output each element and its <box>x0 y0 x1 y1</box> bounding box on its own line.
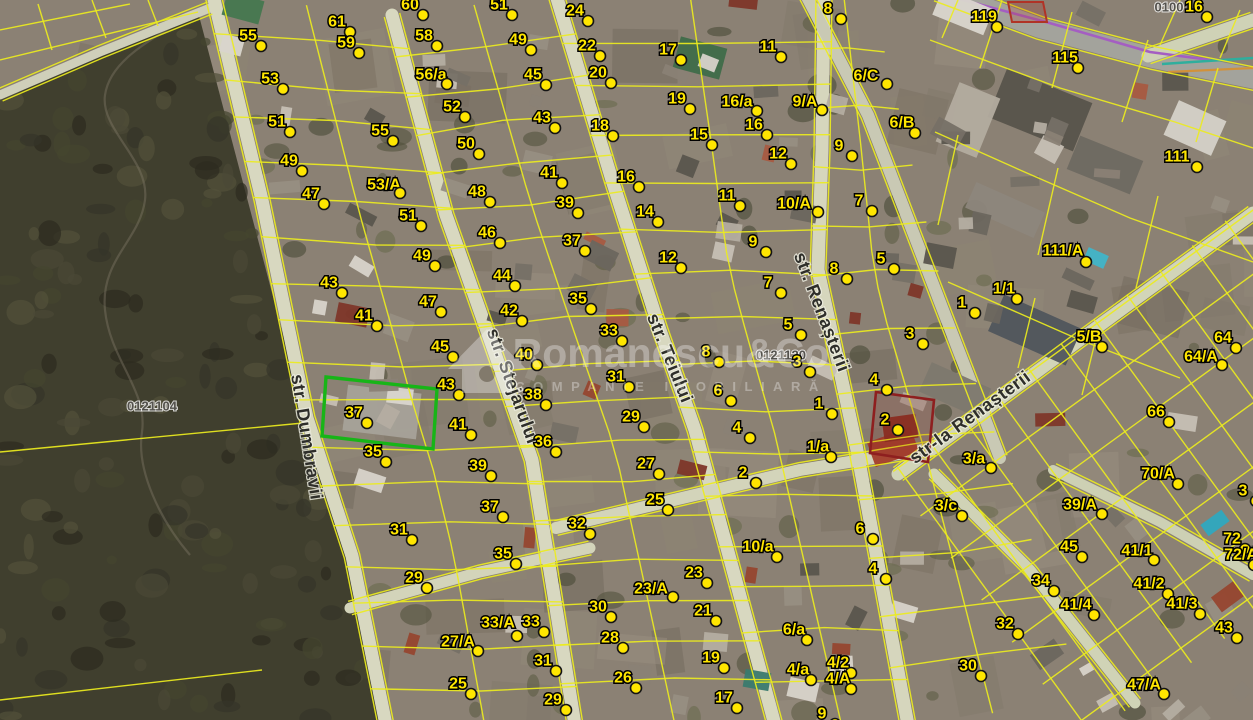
parcel-marker[interactable] <box>388 136 399 147</box>
parcel-marker[interactable] <box>752 106 763 117</box>
parcel-marker[interactable] <box>498 512 509 523</box>
parcel-number: 31 <box>390 522 408 539</box>
parcel-number: 45 <box>1060 539 1078 556</box>
parcel-number: 4 <box>733 420 742 437</box>
parcel-marker[interactable] <box>422 583 433 594</box>
parcel-marker[interactable] <box>407 535 418 546</box>
parcel-marker[interactable] <box>1012 294 1023 305</box>
parcel-number: 55 <box>239 28 257 45</box>
parcel-number: 41 <box>449 417 467 434</box>
parcel-number: 111 <box>1165 149 1190 166</box>
parcel-marker[interactable] <box>618 643 629 654</box>
parcel-marker[interactable] <box>606 612 617 623</box>
parcel-marker[interactable] <box>893 425 904 436</box>
parcel-marker[interactable] <box>278 84 289 95</box>
parcel-number: 9 <box>818 706 827 720</box>
parcel-marker[interactable] <box>772 552 783 563</box>
parcel-number: 49 <box>509 32 527 49</box>
parcel-number: 7 <box>855 193 864 210</box>
parcel-marker[interactable] <box>842 274 853 285</box>
parcel-number: 49 <box>280 153 298 170</box>
parcel-number: 11 <box>760 39 777 56</box>
parcel-marker[interactable] <box>1081 257 1092 268</box>
parcel-marker[interactable] <box>1049 586 1060 597</box>
parcel-number: 39/A <box>1063 497 1097 514</box>
parcel-marker[interactable] <box>416 221 427 232</box>
parcel-number: 6 <box>856 521 865 538</box>
parcel-number: 26 <box>614 670 632 687</box>
parcel-number: 10/A <box>777 196 811 213</box>
parcel-marker[interactable] <box>1202 12 1213 23</box>
parcel-number: 16 <box>745 117 763 134</box>
parcel-marker[interactable] <box>1097 342 1108 353</box>
parcel-marker[interactable] <box>1232 633 1243 644</box>
parcel-number: 24 <box>566 3 584 20</box>
parcel-number: 20 <box>589 65 607 82</box>
parcel-marker[interactable] <box>639 422 650 433</box>
parcel-number: 31 <box>534 653 552 670</box>
parcel-marker[interactable] <box>846 684 857 695</box>
parcel-number: 49 <box>413 248 431 265</box>
parcel-number: 58 <box>415 28 433 45</box>
parcel-number: 16 <box>1185 0 1203 16</box>
parcel-marker[interactable] <box>707 140 718 151</box>
parcel-number: 45 <box>431 339 449 356</box>
parcel-marker[interactable] <box>1173 479 1184 490</box>
parcel-marker[interactable] <box>881 574 892 585</box>
watermark-tagline: COMPANIE IMOBILIARĂ <box>515 379 826 394</box>
parcel-number: 29 <box>544 692 562 709</box>
parcel-marker[interactable] <box>986 463 997 474</box>
parcel-number: 32 <box>996 616 1014 633</box>
parcel-number: 43 <box>320 275 338 292</box>
parcel-marker[interactable] <box>735 201 746 212</box>
parcel-marker[interactable] <box>436 307 447 318</box>
parcel-number: 15 <box>690 127 708 144</box>
parcel-number: 28 <box>601 630 619 647</box>
parcel-marker[interactable] <box>663 505 674 516</box>
parcel-number: 10/a <box>742 539 773 556</box>
parcel-marker[interactable] <box>418 10 429 21</box>
parcel-number: 25 <box>449 676 467 693</box>
parcel-marker[interactable] <box>676 55 687 66</box>
parcel-number: 4 <box>870 372 879 389</box>
parcel-marker[interactable] <box>654 469 665 480</box>
parcel-marker[interactable] <box>762 130 773 141</box>
parcel-number: 29 <box>622 409 640 426</box>
parcel-number: 41/1 <box>1121 543 1152 560</box>
parcel-number: 33 <box>522 614 540 631</box>
parcel-number: 61 <box>328 14 346 31</box>
parcel-marker[interactable] <box>868 534 879 545</box>
parcel-marker[interactable] <box>867 206 878 217</box>
parcel-number: 72/A <box>1224 547 1253 564</box>
parcel-number: 8 <box>830 261 839 278</box>
parcel-number: 37 <box>481 499 499 516</box>
parcel-marker[interactable] <box>372 321 383 332</box>
parcel-number: 1/a <box>807 439 829 456</box>
parcel-number: 111/A <box>1043 243 1084 260</box>
parcel-marker[interactable] <box>473 646 484 657</box>
parcel-number: 43 <box>437 377 455 394</box>
parcel-marker[interactable] <box>918 339 929 350</box>
parcel-number: 22 <box>578 38 596 55</box>
parcel-marker[interactable] <box>827 409 838 420</box>
parcel-marker[interactable] <box>751 478 762 489</box>
parcel-marker[interactable] <box>634 182 645 193</box>
parcel-marker[interactable] <box>910 128 921 139</box>
parcel-number: 37 <box>345 405 363 422</box>
parcel-marker[interactable] <box>606 78 617 89</box>
parcel-marker[interactable] <box>466 689 477 700</box>
parcel-marker[interactable] <box>786 159 797 170</box>
parcel-number: 16/a <box>721 94 752 111</box>
parcel-number: 35 <box>569 291 587 308</box>
parcel-marker[interactable] <box>1249 560 1253 571</box>
parcel-number: 51 <box>399 208 417 225</box>
parcel-marker[interactable] <box>957 511 968 522</box>
parcel-number: 64/A <box>1184 349 1218 366</box>
parcel-marker[interactable] <box>580 246 591 257</box>
parcel-number: 52 <box>443 99 461 116</box>
cadastral-code-label: 0121104 <box>127 399 178 414</box>
parcel-number: 14 <box>636 204 654 221</box>
parcel-marker[interactable] <box>806 675 817 686</box>
parcel-marker[interactable] <box>1013 629 1024 640</box>
parcel-number: 46 <box>478 225 496 242</box>
parcel-marker[interactable] <box>813 207 824 218</box>
parcel-marker[interactable] <box>395 188 406 199</box>
parcel-marker[interactable] <box>474 149 485 160</box>
parcel-marker[interactable] <box>573 208 584 219</box>
parcel-number: 47 <box>419 294 437 311</box>
parcel-marker[interactable] <box>732 703 743 714</box>
parcel-marker[interactable] <box>826 452 837 463</box>
parcel-marker[interactable] <box>1195 609 1206 620</box>
parcel-marker[interactable] <box>583 16 594 27</box>
parcel-marker[interactable] <box>970 308 981 319</box>
parcel-number: 51 <box>268 114 286 131</box>
cadastral-code-label: 0100 <box>1155 0 1184 15</box>
parcel-number: 3/c <box>935 498 957 515</box>
parcel-number: 66 <box>1147 404 1165 421</box>
parcel-number: 33/A <box>481 615 515 632</box>
parcel-number: 39 <box>469 458 487 475</box>
parcel-number: 59 <box>337 35 355 52</box>
parcel-marker[interactable] <box>551 447 562 458</box>
parcel-marker[interactable] <box>337 288 348 299</box>
parcel-marker[interactable] <box>486 471 497 482</box>
parcel-marker[interactable] <box>541 400 552 411</box>
parcel-marker[interactable] <box>726 396 737 407</box>
parcel-number: 9 <box>835 138 844 155</box>
parcel-marker[interactable] <box>608 131 619 142</box>
parcel-number: 27/A <box>441 634 475 651</box>
parcel-number: 1 <box>958 295 967 312</box>
parcel-marker[interactable] <box>319 199 330 210</box>
parcel-number: 19 <box>668 91 686 108</box>
parcel-number: 41 <box>540 165 558 182</box>
parcel-number: 25 <box>646 492 664 509</box>
parcel-number: 64 <box>1214 330 1232 347</box>
parcel-number: 17 <box>659 42 677 59</box>
watermark-house-window <box>479 366 495 382</box>
parcel-marker[interactable] <box>466 430 477 441</box>
parcel-marker[interactable] <box>992 22 1003 33</box>
parcel-marker[interactable] <box>362 418 373 429</box>
parcel-marker[interactable] <box>539 627 550 638</box>
parcel-marker[interactable] <box>1097 509 1108 520</box>
parcel-number: 6/a <box>783 622 805 639</box>
parcel-marker[interactable] <box>585 529 596 540</box>
parcel-number: 23/A <box>634 581 668 598</box>
parcel-number: 51 <box>490 0 508 14</box>
parcel-number: 17 <box>715 690 733 707</box>
parcel-marker[interactable] <box>354 48 365 59</box>
parcel-marker[interactable] <box>507 10 518 21</box>
parcel-marker[interactable] <box>1149 555 1160 566</box>
parcel-number: 41/4 <box>1060 597 1091 614</box>
parcel-number: 3 <box>1239 483 1248 500</box>
parcel-number: 30 <box>959 658 977 675</box>
parcel-number: 7 <box>764 275 773 292</box>
parcel-marker[interactable] <box>551 666 562 677</box>
parcel-number: 53 <box>261 71 279 88</box>
parcel-number: 43 <box>1215 620 1233 637</box>
parcel-marker[interactable] <box>802 635 813 646</box>
parcel-number: 47 <box>302 186 320 203</box>
parcel-number: 29 <box>405 570 423 587</box>
parcel-number: 11 <box>719 188 736 205</box>
parcel-marker[interactable] <box>1077 552 1088 563</box>
parcel-number: 35 <box>364 444 382 461</box>
parcel-marker[interactable] <box>495 238 506 249</box>
parcel-marker[interactable] <box>430 261 441 272</box>
parcel-number: 6/C <box>854 68 879 85</box>
parcel-marker[interactable] <box>817 105 828 116</box>
parcel-number: 39 <box>556 195 574 212</box>
parcel-number: 48 <box>468 184 486 201</box>
parcel-marker[interactable] <box>550 123 561 134</box>
parcel-marker[interactable] <box>595 51 606 62</box>
parcel-marker[interactable] <box>1089 610 1100 621</box>
parcel-number: 41 <box>355 308 373 325</box>
parcel-number: 12 <box>769 146 787 163</box>
parcel-number: 2 <box>881 412 890 429</box>
parcel-marker[interactable] <box>432 41 443 52</box>
parcel-marker[interactable] <box>702 578 713 589</box>
parcel-number: 3 <box>906 326 915 343</box>
parcel-marker[interactable] <box>1073 63 1084 74</box>
parcel-number: 27 <box>637 456 655 473</box>
restricted-building-outline <box>1008 2 1047 22</box>
parcel-marker[interactable] <box>297 166 308 177</box>
parcel-marker[interactable] <box>442 79 453 90</box>
parcel-number: 35 <box>494 546 512 563</box>
parcel-number: 2 <box>739 465 748 482</box>
parcel-marker[interactable] <box>256 41 267 52</box>
satellite-map-canvas[interactable]: 012110401211200100 str. Dumbraviistr. St… <box>0 0 1253 720</box>
parcel-marker[interactable] <box>586 304 597 315</box>
parcel-number: 32 <box>568 516 586 533</box>
parcel-number: 12 <box>659 250 677 267</box>
parcel-marker[interactable] <box>511 559 522 570</box>
parcel-marker[interactable] <box>668 592 679 603</box>
parcel-marker[interactable] <box>381 457 392 468</box>
parcel-number: 4 <box>869 561 878 578</box>
parcel-marker[interactable] <box>719 663 730 674</box>
parcel-marker[interactable] <box>557 178 568 189</box>
parcel-marker[interactable] <box>517 316 528 327</box>
parcel-marker[interactable] <box>285 127 296 138</box>
parcel-marker[interactable] <box>847 151 858 162</box>
parcel-marker[interactable] <box>776 288 787 299</box>
parcel-number: 70/A <box>1141 466 1175 483</box>
parcel-marker[interactable] <box>976 671 987 682</box>
parcel-marker[interactable] <box>889 264 900 275</box>
parcel-number: 36 <box>534 434 552 451</box>
parcel-marker[interactable] <box>561 705 572 716</box>
parcel-marker[interactable] <box>711 616 722 627</box>
parcel-marker[interactable] <box>460 112 471 123</box>
parcel-marker[interactable] <box>836 14 847 25</box>
parcel-number: 44 <box>493 268 511 285</box>
parcel-number: 16 <box>617 169 635 186</box>
parcel-number: 21 <box>694 603 712 620</box>
parcel-marker[interactable] <box>1159 689 1170 700</box>
parcel-marker[interactable] <box>761 247 772 258</box>
parcel-number: 47/A <box>1127 677 1161 694</box>
parcel-number: 1/1 <box>993 281 1015 298</box>
parcel-marker[interactable] <box>510 281 521 292</box>
parcel-number: 8 <box>824 1 833 18</box>
parcel-marker[interactable] <box>653 217 664 228</box>
parcel-number: 42 <box>500 303 518 320</box>
parcel-number: 41/3 <box>1166 596 1197 613</box>
parcel-number: 23 <box>685 565 703 582</box>
parcel-number: 3/a <box>963 451 985 468</box>
parcel-number: 60 <box>401 0 419 14</box>
parcel-number: 34 <box>1032 573 1050 590</box>
parcel-number: 50 <box>457 136 475 153</box>
parcel-number: 43 <box>533 110 551 127</box>
parcel-marker[interactable] <box>1164 417 1175 428</box>
parcel-number: 72 <box>1223 531 1241 548</box>
parcel-marker[interactable] <box>526 45 537 56</box>
parcel-number: 18 <box>591 118 609 135</box>
parcel-marker[interactable] <box>1231 343 1242 354</box>
parcel-marker[interactable] <box>541 80 552 91</box>
parcel-number: 4/a <box>787 662 809 679</box>
parcel-marker[interactable] <box>676 263 687 274</box>
parcel-marker[interactable] <box>1192 162 1203 173</box>
parcel-marker[interactable] <box>485 197 496 208</box>
parcel-number: 19 <box>702 650 720 667</box>
parcel-marker[interactable] <box>882 79 893 90</box>
parcel-marker[interactable] <box>1217 360 1228 371</box>
parcel-number: 30 <box>589 599 607 616</box>
satellite-map-viewport[interactable]: 012110401211200100 str. Dumbraviistr. St… <box>0 0 1253 720</box>
parcel-number: 37 <box>563 233 581 250</box>
watermark-brand: Romanescu&Co <box>513 330 830 376</box>
parcel-number: 55 <box>371 123 389 140</box>
parcel-number: 5 <box>877 251 886 268</box>
parcel-number: 9 <box>749 234 758 251</box>
parcel-marker[interactable] <box>745 433 756 444</box>
parcel-marker[interactable] <box>776 52 787 63</box>
parcel-number: 9/A <box>793 94 818 111</box>
parcel-number: 4/2 <box>827 655 849 672</box>
parcel-marker[interactable] <box>882 385 893 396</box>
parcel-marker[interactable] <box>512 631 523 642</box>
parcel-marker[interactable] <box>631 683 642 694</box>
parcel-number: 1 <box>815 396 824 413</box>
parcel-number: 41/2 <box>1133 576 1164 593</box>
parcel-marker[interactable] <box>685 104 696 115</box>
parcel-number: 45 <box>524 67 542 84</box>
